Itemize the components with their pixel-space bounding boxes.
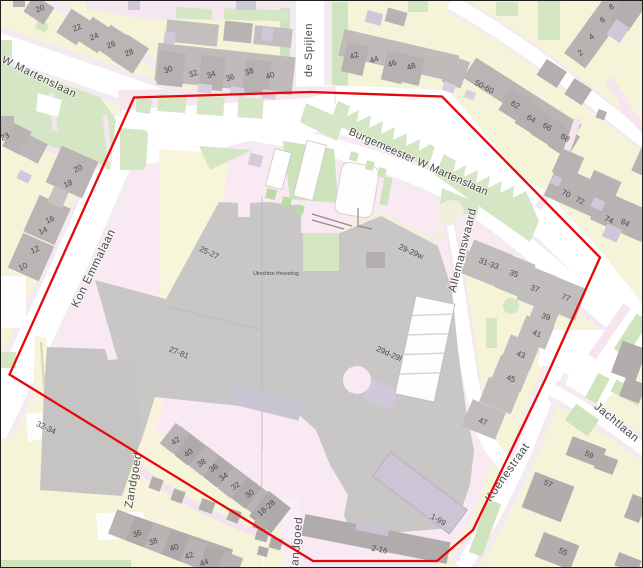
svg-text:de Spijlen: de Spijlen [303, 23, 315, 77]
svg-text:Utrechtse Heuvelrug: Utrechtse Heuvelrug [253, 271, 299, 277]
